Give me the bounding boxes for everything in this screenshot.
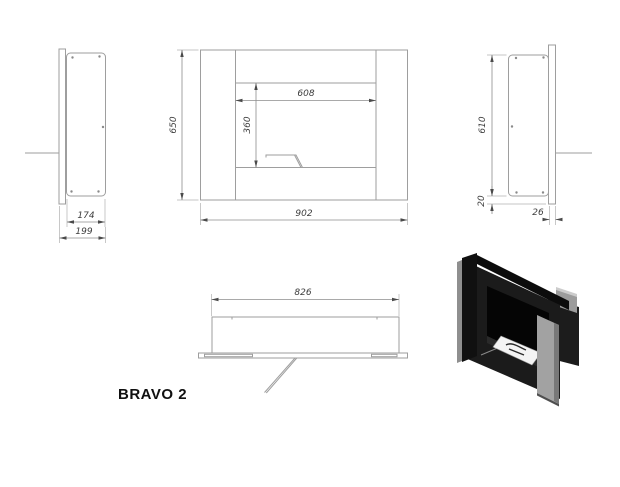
left-side-view: 174 199 — [25, 49, 106, 243]
drawing-svg: 174 199 650 902 608 — [0, 0, 620, 487]
right-side-view: 610 20 26 — [477, 45, 592, 225]
technical-drawing-sheet: 174 199 650 902 608 — [0, 0, 620, 487]
dim-label-right-gap: 20 — [477, 195, 487, 207]
screw-dot — [542, 56, 544, 58]
screw-dot — [71, 56, 73, 58]
product-title: BRAVO 2 — [118, 386, 187, 403]
dim-label-left-inner: 174 — [77, 211, 94, 221]
mount-plate-edge — [59, 49, 66, 204]
side-panel — [67, 53, 106, 196]
render-right-column-shade — [554, 323, 559, 404]
mount-plate-top-view — [199, 353, 408, 358]
front-view: 650 902 608 360 — [169, 50, 408, 225]
dim-label-top-width: 826 — [294, 288, 311, 298]
screw-dot — [542, 191, 544, 193]
body-top-view — [212, 317, 399, 353]
screw-dot — [515, 191, 517, 193]
screw-dot — [102, 126, 104, 128]
support-rod — [265, 358, 296, 393]
mount-plate-edge-right — [549, 45, 556, 204]
screw-dot — [511, 125, 513, 127]
dim-label-opening-height: 360 — [243, 116, 253, 133]
render-left-column — [462, 253, 477, 362]
screw-dot — [98, 55, 100, 57]
dim-label-plate-depth: 26 — [532, 208, 544, 218]
support-rod — [266, 358, 297, 393]
screw-dot — [515, 57, 517, 59]
product-render-3d — [457, 253, 579, 407]
dim-label-left-total: 199 — [75, 227, 92, 237]
top-view: 826 — [199, 288, 408, 393]
dim-label-opening-width: 608 — [297, 89, 314, 99]
screw-dot — [97, 190, 99, 192]
screw-dot — [70, 190, 72, 192]
dim-label-front-width: 902 — [295, 209, 312, 219]
dim-label-right-height: 610 — [478, 116, 488, 133]
side-panel-right — [509, 55, 549, 196]
dim-label-front-height: 650 — [169, 116, 179, 133]
render-left-edge-highlight — [457, 260, 462, 363]
